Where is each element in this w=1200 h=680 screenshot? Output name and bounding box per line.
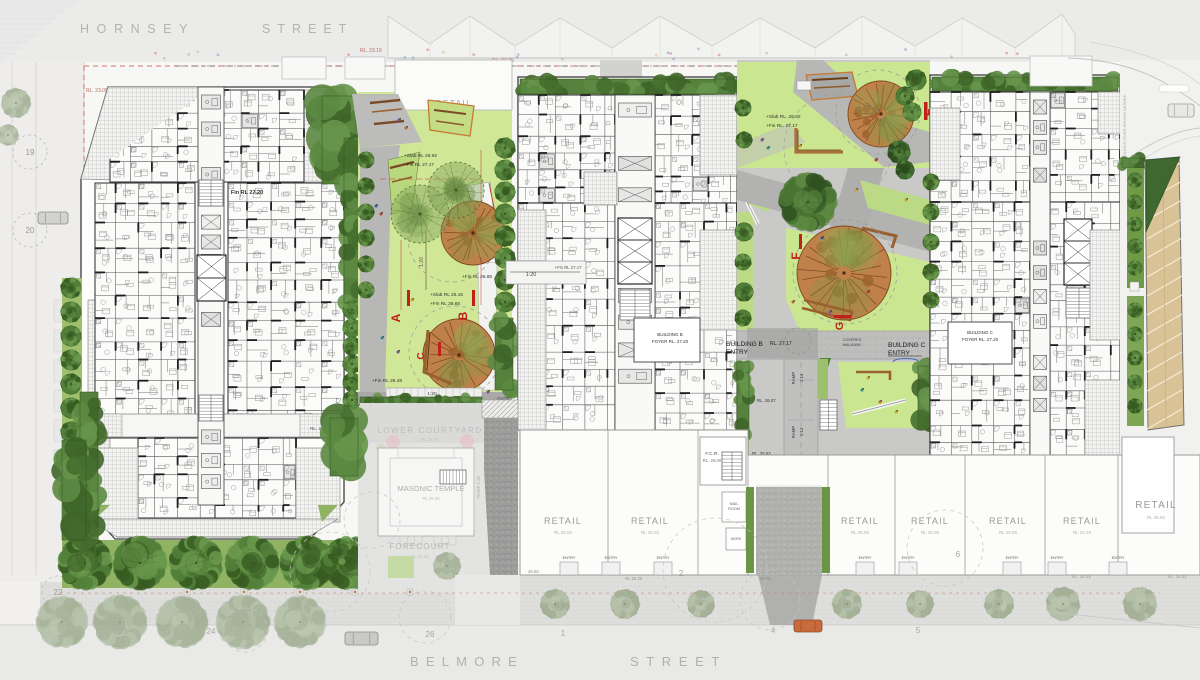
svg-text:F.C.R.: F.C.R. [705,451,718,457]
svg-text:A: A [389,313,403,322]
svg-text:MASONIC TEMPLE: MASONIC TEMPLE [398,484,465,493]
svg-text:RAMP 1:20: RAMP 1:20 [476,475,481,498]
svg-text:1:20: 1:20 [419,257,425,267]
svg-text:RL 26.06: RL 26.06 [999,530,1018,535]
svg-text:BUILDING C: BUILDING C [888,342,926,349]
svg-text:ENTRY: ENTRY [657,556,670,560]
svg-text:ENTRY: ENTRY [1112,556,1125,560]
svg-text:RETAIL: RETAIL [841,516,879,526]
svg-text:RL. 26.00: RL. 26.00 [703,458,722,463]
svg-text:20: 20 [26,226,35,235]
svg-text:RAMP: RAMP [791,426,796,439]
svg-text:RL 26.50: RL 26.50 [1147,515,1166,520]
svg-text:22: 22 [54,588,63,597]
svg-text:BUILDING B: BUILDING B [657,332,683,337]
svg-text:ENTRY: ENTRY [605,556,618,560]
svg-text:RETAIL: RETAIL [544,516,582,526]
svg-text:RL. 23.09: RL. 23.09 [86,88,108,94]
svg-text:ENTRY: ENTRY [563,556,576,560]
svg-text:RL. 27.17: RL. 27.17 [770,341,792,347]
svg-text:ROOM: ROOM [728,507,740,511]
svg-text:BUILDING OVER SHOWN DASHED: BUILDING OVER SHOWN DASHED [1122,94,1127,160]
svg-text:WORK: WORK [731,537,742,541]
svg-text:1:14: 1:14 [799,373,804,382]
svg-text:BUILDING B: BUILDING B [726,341,763,348]
svg-text:C: C [416,352,427,359]
svg-text:FOYER RL. 27.20: FOYER RL. 27.20 [652,339,689,344]
svg-text:RAMP: RAMP [791,372,796,385]
svg-text:COVERED: COVERED [843,338,862,342]
svg-text:+Slab RL. 26.82: +Slab RL. 26.82 [766,114,801,120]
svg-text:RL 25.35: RL 25.35 [422,496,440,501]
svg-text:RL 26.06: RL 26.06 [851,530,870,535]
svg-text:+Fin RL 27.17: +Fin RL 27.17 [555,265,583,270]
svg-text:STREET: STREET [262,22,353,36]
svg-text:F: F [789,252,803,259]
svg-text:BUILDING C: BUILDING C [967,330,994,335]
svg-text:FORECOURT: FORECOURT [389,542,450,551]
svg-text:RETAIL: RETAIL [1135,500,1176,511]
svg-text:ENTRY: ENTRY [1051,556,1064,560]
svg-text:+Slab RL 26.15: +Slab RL 26.15 [430,292,463,298]
svg-text:LOWER COURTYARD: LOWER COURTYARD [377,426,483,435]
svg-text:RL 25.45: RL 25.45 [411,554,429,559]
svg-text:RETAIL: RETAIL [1063,516,1101,526]
svg-text:+Fin RL 26.85: +Fin RL 26.85 [462,274,492,280]
svg-text:Fin RL 27.20: Fin RL 27.20 [231,190,263,196]
svg-text:RETAIL: RETAIL [989,516,1027,526]
svg-text:RETAIL: RETAIL [911,516,949,526]
svg-text:+Fin RL. 27.17: +Fin RL. 27.17 [766,123,798,129]
svg-text:BELMORE: BELMORE [410,654,524,669]
svg-text:ENTRY: ENTRY [859,556,872,560]
svg-text:ENTRY: ENTRY [726,349,749,356]
svg-text:1:20: 1:20 [526,272,537,278]
svg-text:RL 26.02: RL 26.02 [554,530,573,535]
svg-text:RL. 23.19: RL. 23.19 [360,48,382,54]
svg-text:RL 26.02: RL 26.02 [641,530,660,535]
svg-text:RL 26.19: RL 26.19 [1073,530,1092,535]
svg-text:+Slab RL 26.92: +Slab RL 26.92 [404,153,437,159]
svg-text:+Fin RL 26.65: +Fin RL 26.65 [430,301,460,307]
svg-text:RL 26.06: RL 26.06 [921,530,940,535]
svg-text:MAIL: MAIL [730,502,739,506]
svg-text:STREET: STREET [630,654,727,669]
svg-text:FOYER RL. 27.20: FOYER RL. 27.20 [962,337,999,342]
svg-text:WALKWAY: WALKWAY [843,343,862,347]
svg-text:HORNSEY: HORNSEY [80,22,195,36]
svg-text:RETAIL: RETAIL [631,516,669,526]
svg-text:19: 19 [26,148,35,157]
svg-text:+Fin RL 27.17: +Fin RL 27.17 [404,162,434,168]
svg-text:ENTRY: ENTRY [1006,556,1019,560]
svg-text:B: B [456,311,470,320]
svg-text:1:14: 1:14 [799,427,804,436]
svg-text:ENTRY: ENTRY [902,556,915,560]
svg-text:+Fin RL 26.48: +Fin RL 26.48 [372,378,402,384]
svg-text:G: G [834,322,846,331]
svg-text:RL. 26.07: RL. 26.07 [757,398,776,403]
svg-text:RL 25.45: RL 25.45 [421,437,439,442]
